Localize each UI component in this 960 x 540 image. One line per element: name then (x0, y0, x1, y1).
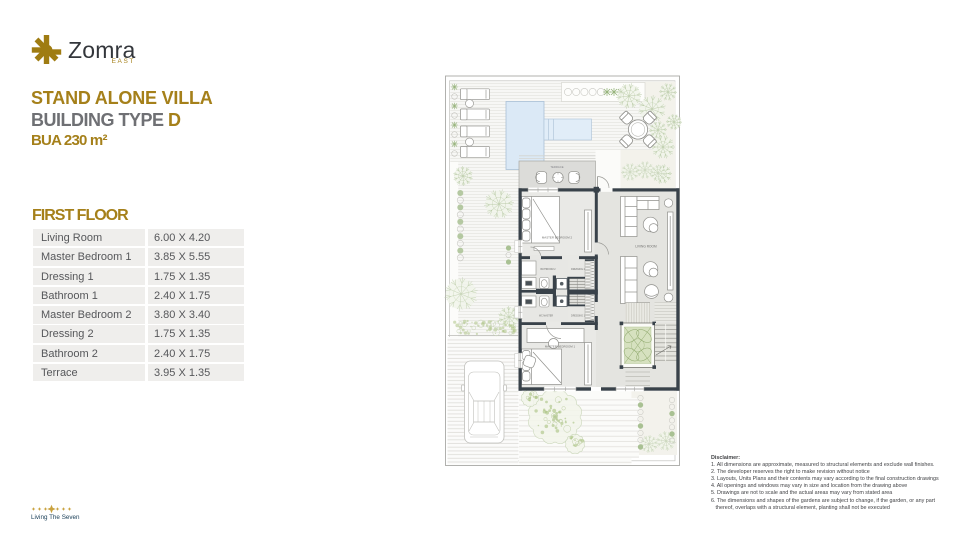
svg-text:TERRACE: TERRACE (550, 165, 563, 169)
svg-text:BATHROOM 2: BATHROOM 2 (540, 268, 556, 271)
svg-text:WC MASTER: WC MASTER (539, 315, 553, 318)
svg-text:LIVING ROOM: LIVING ROOM (635, 245, 657, 249)
svg-text:MASTER BEDROOM 2: MASTER BEDROOM 2 (542, 236, 573, 240)
svg-text:DRESSING 2: DRESSING 2 (571, 269, 586, 271)
svg-text:DRESSING 1: DRESSING 1 (571, 316, 586, 318)
svg-text:MASTER BEDROOM 1: MASTER BEDROOM 1 (545, 345, 576, 349)
